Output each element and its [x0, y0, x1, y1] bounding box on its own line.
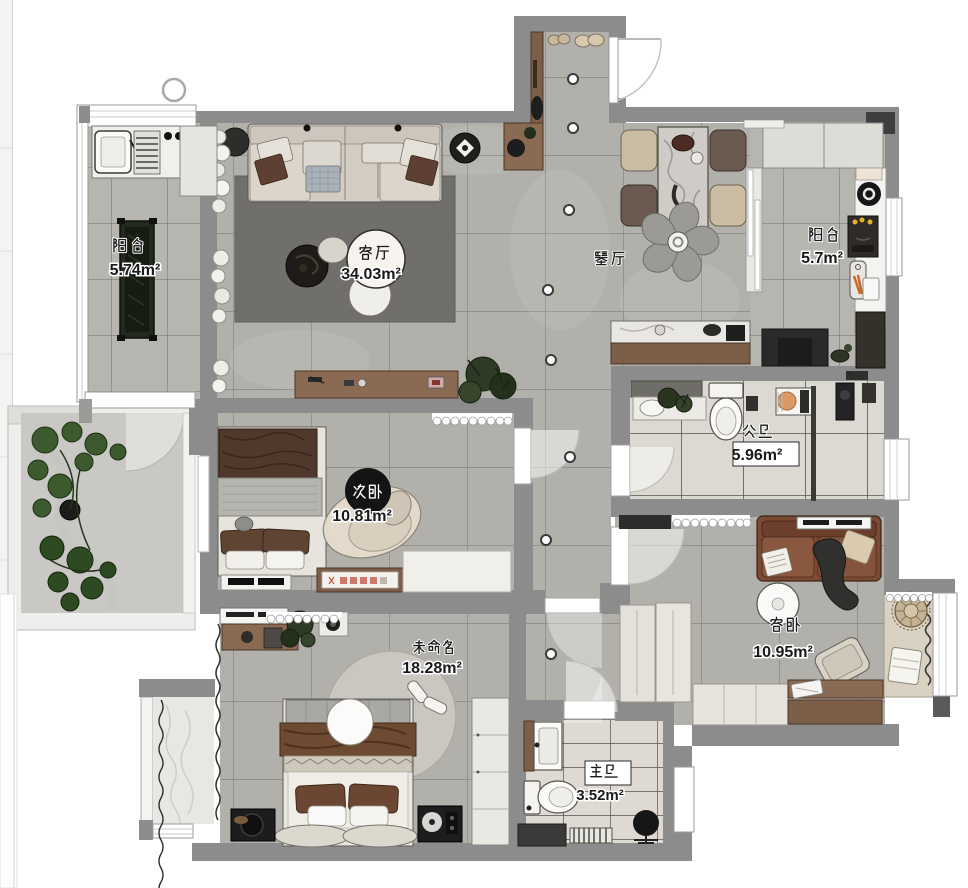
svg-text:3.52m²: 3.52m²: [576, 787, 624, 804]
svg-text:5.74m²: 5.74m²: [110, 262, 161, 279]
svg-text:5.96m²: 5.96m²: [732, 447, 783, 464]
svg-text:10.81m²: 10.81m²: [332, 508, 392, 525]
svg-text:5.7m²: 5.7m²: [801, 250, 843, 267]
svg-text:18.28m²: 18.28m²: [402, 660, 462, 677]
svg-text:10.95m²: 10.95m²: [753, 644, 813, 661]
svg-text:34.03m²: 34.03m²: [341, 266, 401, 283]
